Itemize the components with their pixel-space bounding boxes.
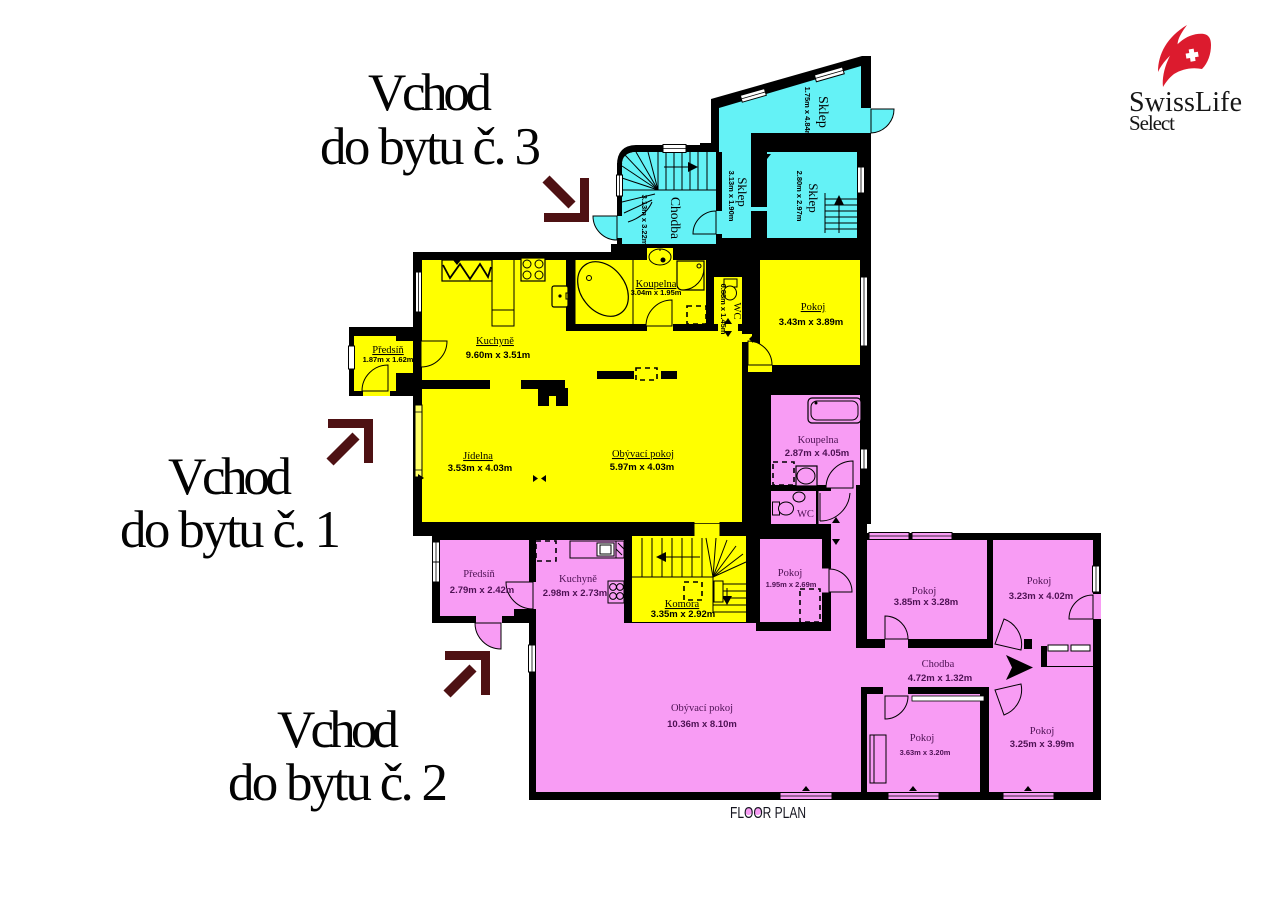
- svg-text:Kuchyně: Kuchyně: [476, 336, 514, 347]
- svg-text:3.63m x 3.20m: 3.63m x 3.20m: [900, 748, 951, 757]
- svg-text:1.75m x 4.84m: 1.75m x 4.84m: [803, 87, 812, 138]
- svg-text:Chodba: Chodba: [922, 659, 955, 670]
- svg-text:5.97m x 4.03m: 5.97m x 4.03m: [610, 462, 674, 473]
- svg-text:Kuchyně: Kuchyně: [559, 574, 597, 585]
- svg-text:Pokoj: Pokoj: [778, 568, 803, 579]
- svg-text:do bytu č. 1: do bytu č. 1: [120, 501, 341, 559]
- svg-text:3.13m x 1.90m: 3.13m x 1.90m: [727, 171, 736, 222]
- svg-text:Vchod: Vchod: [168, 448, 292, 506]
- svg-text:Pokoj: Pokoj: [910, 733, 935, 744]
- svg-text:Koupelna: Koupelna: [798, 435, 839, 446]
- svg-text:Pokoj: Pokoj: [1027, 576, 1052, 587]
- svg-text:Sklep: Sklep: [815, 96, 830, 128]
- svg-text:1.95m x 2.69m: 1.95m x 2.69m: [766, 580, 817, 589]
- svg-text:10.36m x 8.10m: 10.36m x 8.10m: [667, 719, 737, 730]
- svg-text:3.13m x 3.22m: 3.13m x 3.22m: [640, 195, 649, 246]
- svg-text:1.87m x 1.62m: 1.87m x 1.62m: [363, 355, 414, 364]
- svg-text:Vchod: Vchod: [368, 64, 492, 122]
- svg-text:3.23m x 4.02m: 3.23m x 4.02m: [1009, 591, 1073, 602]
- svg-text:WC: WC: [731, 303, 742, 320]
- svg-text:do bytu č. 3: do bytu č. 3: [320, 118, 541, 176]
- svg-text:3.43m x 3.89m: 3.43m x 3.89m: [779, 317, 843, 328]
- svg-text:Obývací pokoj: Obývací pokoj: [671, 703, 733, 714]
- svg-text:Chodba: Chodba: [668, 197, 683, 239]
- svg-text:Sklep: Sklep: [735, 177, 750, 207]
- svg-text:Jídelna: Jídelna: [463, 451, 493, 462]
- svg-text:FLOOR PLAN: FLOOR PLAN: [730, 805, 806, 822]
- svg-text:Pokoj: Pokoj: [1030, 726, 1055, 737]
- svg-text:Předsíň: Předsíň: [463, 569, 495, 580]
- svg-text:Pokoj: Pokoj: [912, 586, 937, 597]
- svg-text:0.88m x 1.45m: 0.88m x 1.45m: [719, 284, 728, 335]
- svg-text:Select: Select: [1129, 111, 1175, 135]
- svg-text:Vchod: Vchod: [277, 701, 399, 759]
- svg-text:2.87m x 4.05m: 2.87m x 4.05m: [785, 448, 849, 459]
- svg-text:3.85m x 3.28m: 3.85m x 3.28m: [894, 597, 958, 608]
- svg-text:do bytu č. 2: do bytu č. 2: [228, 754, 448, 812]
- svg-text:Sklep: Sklep: [806, 183, 821, 213]
- svg-text:3.53m x 4.03m: 3.53m x 4.03m: [448, 463, 512, 474]
- svg-text:Pokoj: Pokoj: [801, 302, 826, 313]
- svg-text:9.60m x 3.51m: 9.60m x 3.51m: [466, 350, 530, 361]
- svg-text:3.35m x 2.92m: 3.35m x 2.92m: [651, 609, 715, 620]
- svg-text:2.98m x 2.73m: 2.98m x 2.73m: [543, 588, 607, 599]
- svg-text:4.72m x 1.32m: 4.72m x 1.32m: [908, 673, 972, 684]
- svg-text:3.25m x 3.99m: 3.25m x 3.99m: [1010, 739, 1074, 750]
- svg-text:Obývací pokoj: Obývací pokoj: [612, 449, 674, 460]
- svg-text:3.04m x 1.95m: 3.04m x 1.95m: [631, 288, 682, 297]
- svg-text:2.79m x 2.42m: 2.79m x 2.42m: [450, 585, 514, 596]
- svg-text:WC: WC: [797, 509, 814, 520]
- svg-text:2.80m x 2.97m: 2.80m x 2.97m: [795, 171, 804, 222]
